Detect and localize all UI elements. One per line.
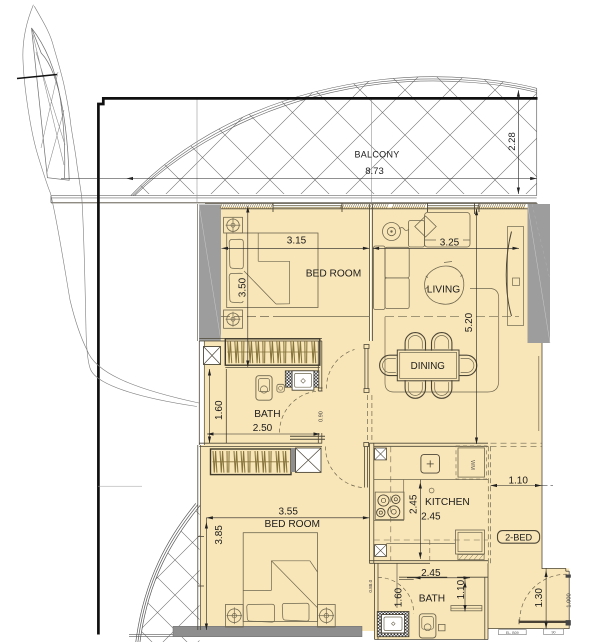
- svg-text:5.20: 5.20: [464, 312, 475, 332]
- svg-text:8.73: 8.73: [365, 166, 384, 177]
- svg-text:EL. B09: EL. B09: [506, 631, 519, 635]
- svg-text:BED ROOM: BED ROOM: [306, 268, 361, 279]
- svg-text:DINING: DINING: [411, 361, 445, 372]
- svg-text:3.15: 3.15: [287, 235, 307, 246]
- svg-text:3.25: 3.25: [440, 237, 460, 248]
- svg-text:1.60: 1.60: [214, 400, 225, 420]
- svg-text:3.55: 3.55: [278, 507, 298, 518]
- svg-text:BATH: BATH: [419, 593, 445, 604]
- svg-text:2-BED: 2-BED: [505, 533, 532, 543]
- svg-text:2.45: 2.45: [421, 568, 441, 579]
- svg-text:1.60: 1.60: [394, 587, 405, 607]
- svg-text:2.28: 2.28: [507, 132, 518, 151]
- svg-text:BED ROOM: BED ROOM: [265, 519, 320, 530]
- svg-text:2.45: 2.45: [409, 494, 420, 514]
- svg-text:1.30: 1.30: [534, 588, 545, 608]
- svg-text:KITCHEN: KITCHEN: [425, 497, 470, 508]
- svg-text:LIVING: LIVING: [427, 284, 460, 295]
- svg-text:1.10: 1.10: [456, 579, 467, 599]
- svg-text:2.50: 2.50: [253, 423, 273, 434]
- svg-text:3.85: 3.85: [214, 525, 225, 545]
- svg-text:BATH: BATH: [254, 409, 280, 420]
- svg-text:3.50: 3.50: [238, 277, 249, 297]
- svg-text:1.000: 1.000: [567, 593, 573, 608]
- svg-text:90: 90: [552, 631, 556, 635]
- svg-text:WM: WM: [469, 460, 475, 470]
- svg-text:0.90: 0.90: [319, 411, 325, 422]
- svg-text:2.45: 2.45: [421, 511, 441, 522]
- svg-text:BALCONY: BALCONY: [354, 149, 399, 159]
- svg-text:0.88.0: 0.88.0: [368, 579, 373, 592]
- svg-text:1.10: 1.10: [508, 475, 528, 486]
